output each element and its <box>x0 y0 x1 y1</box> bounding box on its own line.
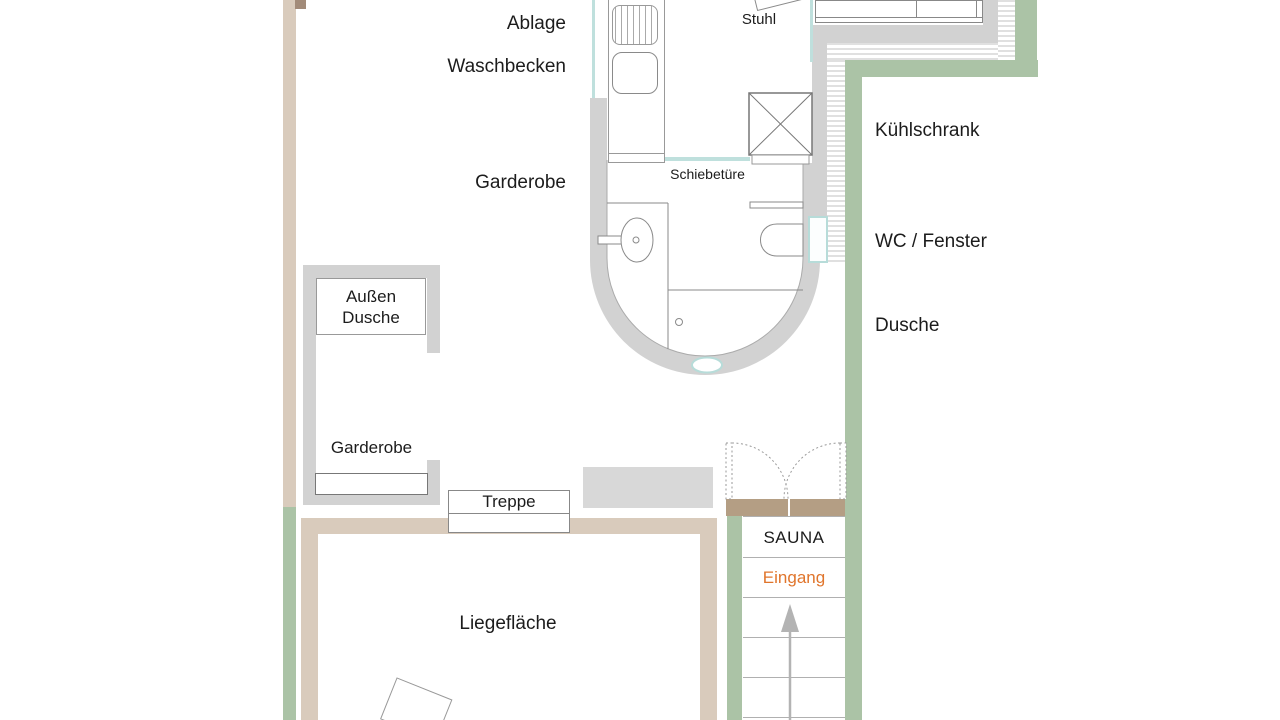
terrace-sideboard <box>815 0 983 23</box>
fridge-label: Kühlschrank <box>875 120 980 142</box>
wall-topright-green-v <box>1015 0 1037 77</box>
door-swing-right <box>784 443 840 499</box>
sideboard-line-h <box>816 17 982 18</box>
floor-plan: Außen Dusche Garderobe Liegefläche Trepp… <box>0 0 1280 720</box>
bath-wardrobe-label: Garderobe <box>366 172 566 194</box>
shower-drain <box>676 319 683 326</box>
wall-topright-gray-h <box>812 25 998 43</box>
outdoor-wall-left <box>303 265 316 505</box>
washbasin-drain <box>633 237 639 243</box>
sideboard-line-v1 <box>916 1 917 17</box>
stair-tread-line <box>743 637 845 638</box>
kitchen-sink <box>612 52 658 94</box>
outdoor-wall-stub-lower <box>427 460 440 492</box>
bath-floor-oval <box>692 358 722 373</box>
wall-left-tan <box>283 0 296 507</box>
wc-bowl <box>761 224 804 256</box>
wall-left-green <box>283 507 296 720</box>
lounge-wall-left <box>301 518 318 720</box>
shelf-label: Ablage <box>366 13 566 35</box>
wall-insulation-right <box>827 60 845 262</box>
outdoor-wardrobe-shelf <box>315 473 428 495</box>
fridge-plinth <box>752 155 809 164</box>
washbasin-bowl <box>621 218 653 262</box>
door-leaf-left <box>726 443 732 499</box>
stair-tread-line <box>743 597 845 598</box>
sliding-door-label: Schiebetüre <box>640 166 775 182</box>
door-swing-left <box>732 443 788 499</box>
outdoor-wall-stub-upper <box>427 278 440 353</box>
kitchen-drainer <box>612 5 658 45</box>
wall-corner-post <box>295 0 306 9</box>
glass-wall-right <box>810 0 813 62</box>
outdoor-shower-label-line1: Außen <box>317 286 425 307</box>
stair-upper-divider <box>449 513 569 514</box>
chair-outline <box>745 0 806 10</box>
stair-tread-line <box>743 717 845 718</box>
lounge-wall-right <box>700 518 717 720</box>
wc-window <box>809 217 827 262</box>
sauna-label: SAUNA <box>743 528 845 548</box>
outdoor-wall-top <box>303 265 440 278</box>
bathroom-wall-inner-edge <box>607 160 803 356</box>
stair-tread-line <box>743 677 845 678</box>
fridge-cross-2 <box>749 93 812 155</box>
sauna-threshold-joint <box>788 499 790 516</box>
entrance-label: Eingang <box>743 568 845 588</box>
fridge-cross-1 <box>749 93 812 155</box>
sauna-wall-left <box>727 516 742 720</box>
glass-wall-left <box>592 0 595 98</box>
stair-upper-label: Treppe <box>449 491 569 512</box>
lounge-label: Liegefläche <box>408 613 608 635</box>
sideboard-line-v2 <box>976 1 977 17</box>
washbasin-label: Waschbecken <box>366 56 566 78</box>
wall-insulation-top-h <box>822 43 1015 60</box>
sauna-threshold <box>726 499 846 516</box>
landing-platform <box>583 467 713 508</box>
stair-upper-box: Treppe <box>448 490 570 533</box>
outdoor-wardrobe-label: Garderobe <box>303 438 440 458</box>
wall-topright-gray-v <box>983 0 998 43</box>
wall-right-green <box>845 77 862 720</box>
outdoor-shower-box: Außen Dusche <box>316 278 426 335</box>
wc-window-label: WC / Fenster <box>875 231 987 253</box>
stair-tread-line <box>743 557 845 558</box>
bath-wall-left-extension <box>590 98 607 162</box>
sauna-stairs: SAUNA Eingang <box>743 516 845 720</box>
outdoor-shower-label-line2: Dusche <box>317 307 425 328</box>
kitchen-counter-base <box>608 153 665 163</box>
bathroom-wall <box>590 160 820 375</box>
wall-insulation-top-v <box>998 0 1015 60</box>
wall-right-gray-inner <box>812 43 827 217</box>
fridge-box <box>749 93 812 155</box>
sliding-door <box>665 157 750 161</box>
chair-label: Stuhl <box>709 11 809 28</box>
washbasin-counter <box>598 236 630 244</box>
shower-label: Dusche <box>875 315 939 337</box>
wall-topright-green-h <box>843 60 1038 77</box>
bath-shelf-stub <box>750 202 803 208</box>
lounger-outline <box>381 678 452 720</box>
